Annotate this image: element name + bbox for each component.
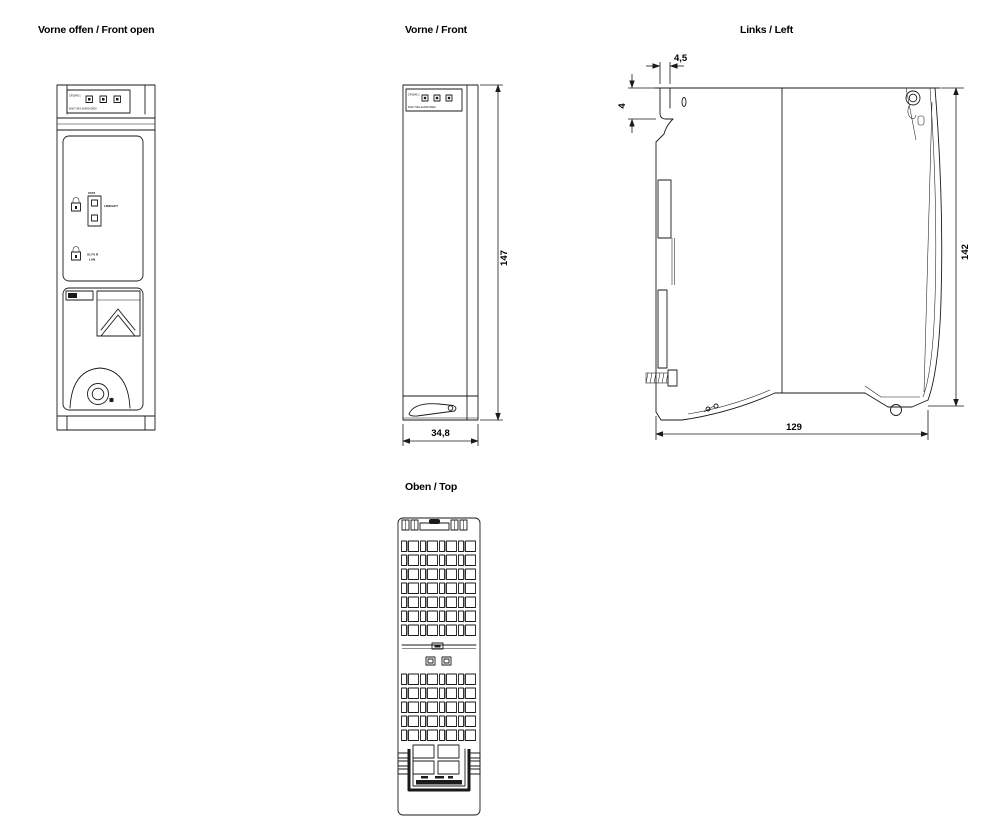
port-label: X1P1 <box>88 191 96 195</box>
mid-divider <box>402 643 476 665</box>
side-profile-details <box>658 180 675 368</box>
dimension-hook-width: 4,5 <box>646 53 688 84</box>
dim-142: 142 <box>960 244 971 260</box>
rating-plate: CP1543-1 6GK7 543-1AX00-0XE0 <box>406 89 462 111</box>
type-label: CP1543-1 <box>408 93 420 97</box>
dim-129: 129 <box>786 422 802 433</box>
drawing-front-open: CP1543-1 6GK7 543-1AX00-0XE0 X1P1 LINK/A… <box>50 78 162 442</box>
front-face-profile <box>906 88 942 400</box>
grounding-screw <box>646 370 677 386</box>
dim-34-8: 34,8 <box>431 428 450 439</box>
port-sub: LAN <box>89 258 95 262</box>
dimension-width: 34,8 <box>403 424 478 446</box>
port-name: X1 P1 R <box>87 253 99 257</box>
vent-grid-lower <box>401 673 477 743</box>
din-rail-latch <box>70 368 130 408</box>
title-front: Vorne / Front <box>405 24 467 36</box>
dim-147: 147 <box>499 250 510 266</box>
drawing-left: 4,5 4 142 129 <box>610 40 990 450</box>
clip-tab <box>429 519 440 524</box>
dimension-height: 142 <box>928 88 971 406</box>
title-left: Links / Left <box>740 24 793 36</box>
top-castellation <box>402 519 467 530</box>
title-front-open: Vorne offen / Front open <box>38 24 154 36</box>
drawing-front: CP1543-1 6GK7 543-1AX00-0XE0 147 34,8 <box>395 78 520 456</box>
ethernet-port <box>88 196 101 226</box>
drawing-top <box>390 465 500 830</box>
type-label: CP1543-1 <box>69 94 81 98</box>
dimension-height: 147 <box>480 85 510 420</box>
padlock-icon <box>72 247 81 261</box>
dimension-depth: 129 <box>656 410 928 440</box>
vent-grid-upper <box>401 540 477 638</box>
bottom-profile <box>656 386 928 420</box>
order-number: 6GK7 543-1AX00-0XE0 <box>408 105 436 109</box>
terminal-cover <box>66 291 140 336</box>
order-number: 6GK7 543-1AX00-0XE0 <box>69 107 97 111</box>
rating-plate: CP1543-1 6GK7 543-1AX00-0XE0 <box>67 90 130 113</box>
padlock-icon <box>72 198 81 212</box>
din-rail-bracket <box>398 745 480 790</box>
din-rail-hook <box>656 88 686 412</box>
dim-4: 4 <box>617 103 628 109</box>
dimension-hook-depth: 4 <box>617 74 656 133</box>
port-led-label: LINK/ACT <box>104 204 118 208</box>
dim-4-5: 4,5 <box>674 53 688 64</box>
